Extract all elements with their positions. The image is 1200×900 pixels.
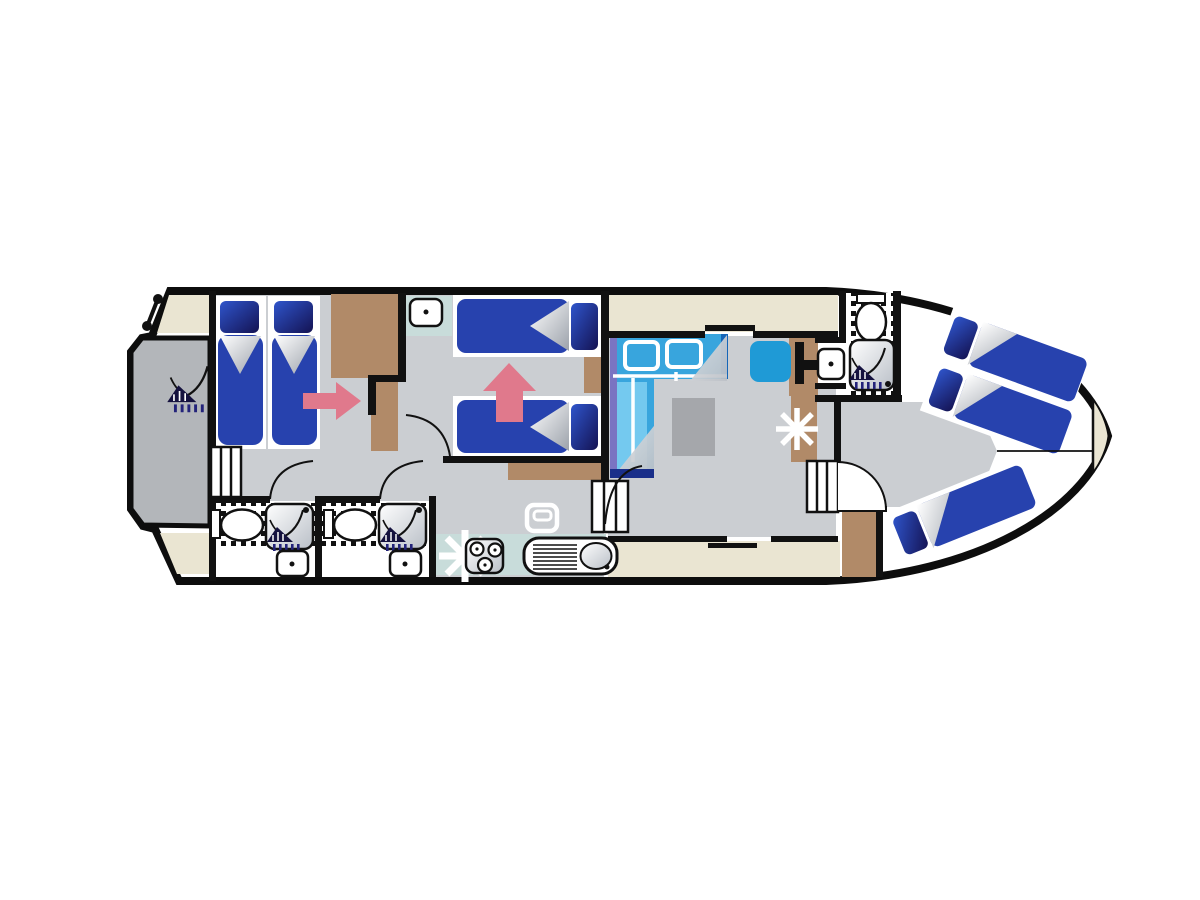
mid-cabin-washbasin [410,299,442,326]
stairs-icon [807,461,838,512]
houseboat-floor-plan [0,0,1200,900]
window-mark-bottom [708,543,757,548]
mid-nightstand [584,355,603,393]
pillow-icon [274,301,313,333]
stairs-icon [211,447,241,497]
aft-wardrobe [331,294,398,378]
toilet-icon [211,510,220,538]
pillow-icon [571,303,598,350]
toilet-icon [334,510,376,541]
salon-table [672,398,715,456]
floor-plan-canvas [0,0,1200,900]
pillow-icon [571,404,598,450]
sink-drainer-icon [524,538,617,574]
stairs-icon [592,481,628,532]
stern-swim-platform [131,338,210,526]
table-star-icon [776,408,818,450]
toilet-icon [324,510,333,538]
toilet-icon [221,510,263,541]
helm-seat [750,341,791,382]
bow-wardrobe [842,505,877,577]
window-mark-top [705,325,755,331]
stove-icon [466,539,503,573]
pillow-icon [220,301,259,333]
toilet-icon [856,303,886,341]
toilet-icon [857,294,885,303]
